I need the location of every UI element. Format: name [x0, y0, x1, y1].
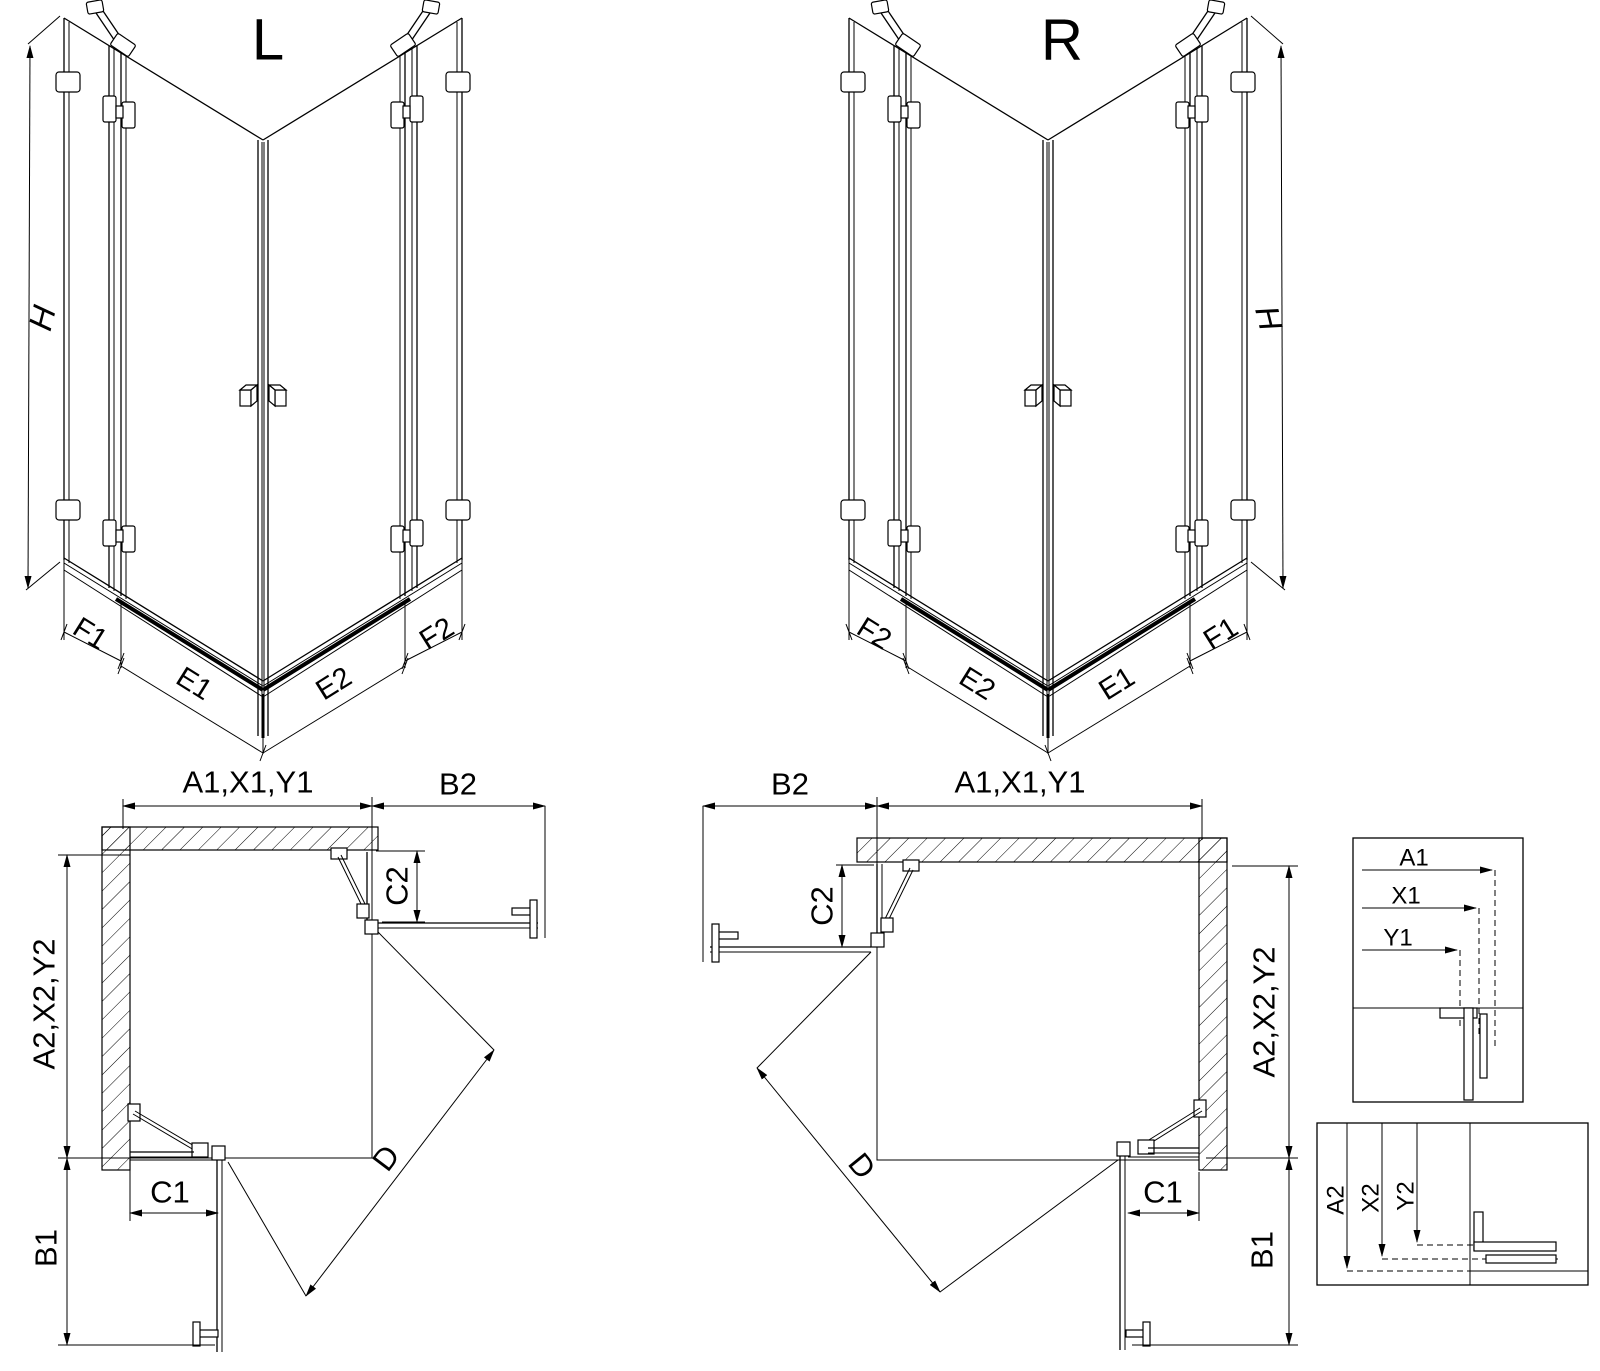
detail-x2-label: X2 [1358, 1183, 1385, 1212]
left-plan-a1x1y1-label: A1,X1,Y1 [183, 765, 314, 800]
right-plan-tray [877, 862, 1199, 1160]
detail-a1-label: A1 [1399, 845, 1428, 872]
left-plan-c1-label: C1 [150, 1175, 190, 1210]
right-plan-b1-label: B1 [1245, 1231, 1280, 1269]
left-plan-top-wall [102, 827, 378, 850]
detail-box-a2: A2 X2 Y2 [1317, 1123, 1588, 1285]
left-height-label: H [21, 302, 63, 334]
right-plan-top-wall [857, 838, 1227, 862]
left-f1-label: F1 [67, 611, 113, 656]
left-plan-tray [130, 850, 372, 1158]
right-plan-c1-label: C1 [1143, 1175, 1183, 1210]
right-plan-a2x2y2-label: A2,X2,Y2 [1247, 947, 1282, 1078]
left-plan-side-wall [102, 827, 130, 1170]
right-plan-a1x1y1-label: A1,X1,Y1 [955, 765, 1086, 800]
left-plan-c2-label: C2 [380, 866, 415, 906]
right-plan-d-label: D [841, 1146, 882, 1185]
right-f2-label: F2 [851, 611, 897, 656]
detail-box-a1: A1 X1 Y1 [1353, 838, 1523, 1102]
detail-y2-label: Y2 [1393, 1181, 1420, 1210]
right-height-label: H [1248, 302, 1290, 334]
right-plan-b2-label: B2 [771, 767, 809, 802]
left-f2-label: F2 [414, 611, 460, 656]
right-3d-view: R H F2 E2 E1 F1 [841, 0, 1290, 761]
left-plan-a2x2y2-label: A2,X2,Y2 [27, 939, 62, 1070]
right-f1-label: F1 [1198, 611, 1244, 656]
detail-a2-label: A2 [1323, 1185, 1350, 1214]
detail-x1-label: X1 [1391, 883, 1420, 910]
shower-enclosure-diagram: L H F1 E1 E2 F2 R H F2 E2 E1 F1 [0, 0, 1600, 1371]
left-e2-label: E2 [310, 661, 357, 707]
right-e2-label: E2 [953, 661, 1000, 707]
right-plan-side-wall [1199, 838, 1227, 1170]
left-plan-view: A1,X1,Y1 B2 C2 A2,X2,Y2 C1 B1 D [27, 765, 546, 1353]
right-plan-view: A1,X1,Y1 B2 C2 A2,X2,Y2 C1 B1 D [703, 765, 1298, 1351]
detail-y1-label: Y1 [1383, 925, 1412, 952]
right-version-title: R [1041, 8, 1083, 73]
left-3d-view: L H F1 E1 E2 F2 [21, 0, 470, 761]
left-plan-b1-label: B1 [29, 1229, 64, 1267]
right-plan-c2-label: C2 [805, 886, 840, 926]
technical-drawing-page: L H F1 E1 E2 F2 R H F2 E2 E1 F1 [0, 0, 1600, 1371]
left-version-title: L [252, 8, 284, 73]
left-plan-b2-label: B2 [439, 767, 477, 802]
